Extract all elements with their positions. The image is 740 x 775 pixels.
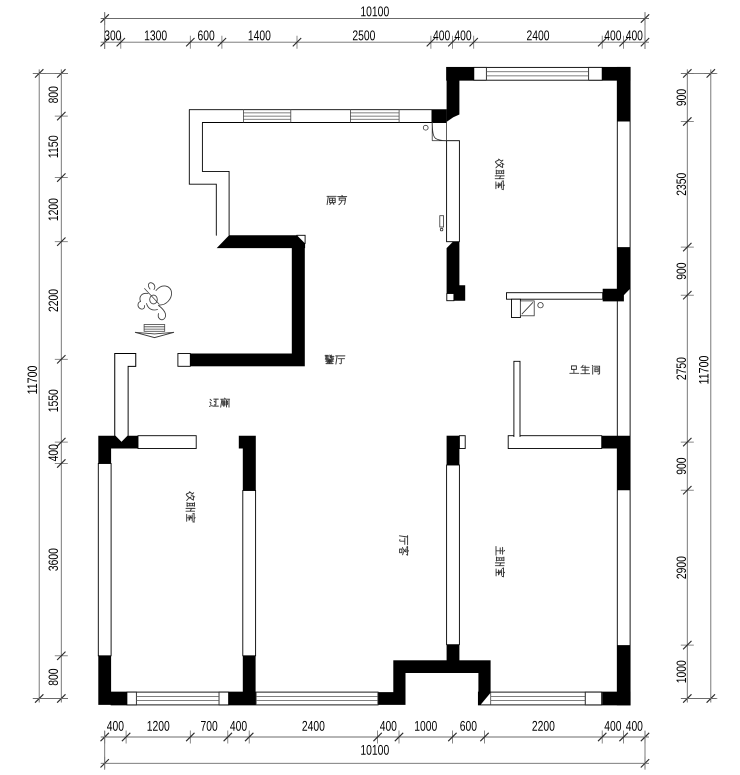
- svg-text:1000: 1000: [674, 660, 690, 683]
- svg-text:10100: 10100: [360, 743, 389, 759]
- svg-text:400: 400: [604, 28, 621, 44]
- svg-text:400: 400: [626, 28, 643, 44]
- svg-text:900: 900: [674, 262, 690, 279]
- svg-text:400: 400: [433, 28, 450, 44]
- svg-text:1000: 1000: [414, 719, 437, 735]
- svg-text:1300: 1300: [144, 28, 167, 44]
- svg-text:3600: 3600: [46, 548, 62, 571]
- svg-text:1150: 1150: [46, 135, 62, 158]
- svg-text:400: 400: [454, 28, 471, 44]
- svg-text:2400: 2400: [526, 28, 549, 44]
- svg-text:2200: 2200: [532, 719, 555, 735]
- svg-text:2900: 2900: [674, 556, 690, 579]
- svg-text:10100: 10100: [360, 4, 389, 20]
- svg-text:400: 400: [604, 719, 621, 735]
- svg-text:1550: 1550: [46, 389, 62, 412]
- svg-text:900: 900: [674, 89, 690, 106]
- svg-text:400: 400: [230, 719, 247, 735]
- svg-text:2350: 2350: [674, 173, 690, 196]
- svg-text:2750: 2750: [674, 357, 690, 380]
- svg-text:900: 900: [674, 457, 690, 474]
- svg-text:400: 400: [626, 719, 643, 735]
- svg-text:2200: 2200: [46, 289, 62, 312]
- svg-text:2400: 2400: [302, 719, 325, 735]
- svg-text:1200: 1200: [46, 198, 62, 221]
- svg-text:400: 400: [46, 444, 62, 461]
- svg-text:700: 700: [200, 719, 217, 735]
- svg-text:600: 600: [197, 28, 214, 44]
- svg-text:2500: 2500: [352, 28, 375, 44]
- svg-text:1200: 1200: [147, 719, 170, 735]
- svg-text:1400: 1400: [248, 28, 271, 44]
- svg-text:11700: 11700: [25, 366, 41, 395]
- svg-text:800: 800: [46, 86, 62, 103]
- svg-text:600: 600: [460, 719, 477, 735]
- svg-text:800: 800: [46, 668, 62, 685]
- svg-text:400: 400: [107, 719, 124, 735]
- svg-text:11700: 11700: [697, 356, 713, 385]
- svg-text:300: 300: [104, 28, 121, 44]
- svg-text:400: 400: [380, 719, 397, 735]
